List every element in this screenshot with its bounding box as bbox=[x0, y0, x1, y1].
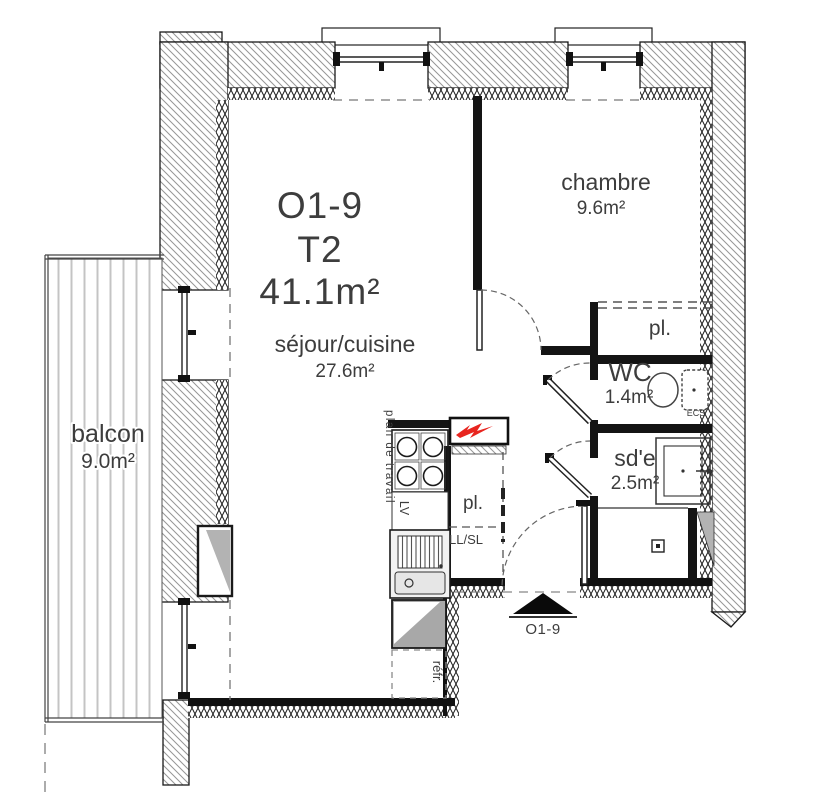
sink-icon bbox=[390, 530, 450, 598]
hall-closet-label: pl. bbox=[649, 317, 671, 340]
chambre-name-label: chambre bbox=[561, 169, 650, 195]
balcony bbox=[45, 255, 164, 798]
floor-drain-icon bbox=[652, 540, 664, 552]
toilet-icon bbox=[648, 370, 708, 410]
sejour-area-label: 27.6m² bbox=[315, 361, 374, 382]
unit-type-label: T2 bbox=[297, 229, 342, 270]
hall-closet-front bbox=[598, 302, 712, 308]
fridge-label: réfr. bbox=[430, 661, 445, 683]
washer-label: LL/SL bbox=[449, 532, 483, 547]
window-handle-icon bbox=[188, 644, 196, 649]
balcon-name-label: balcon bbox=[71, 420, 145, 448]
entry-id-label: O1-9 bbox=[525, 621, 560, 638]
shaft-icon bbox=[392, 600, 446, 648]
unit-area-label: 41.1m² bbox=[259, 271, 380, 312]
electrical-panel-icon bbox=[450, 418, 508, 454]
sde-door bbox=[545, 441, 590, 496]
sejour-name-label: séjour/cuisine bbox=[275, 331, 416, 357]
wc-name-label: WC bbox=[608, 357, 651, 387]
window-handle-icon bbox=[379, 62, 384, 71]
balcon-area-label: 9.0m² bbox=[81, 450, 135, 473]
sde-area-label: 2.5m² bbox=[611, 473, 660, 494]
window-handle-icon bbox=[188, 330, 196, 335]
wc-door bbox=[543, 363, 590, 422]
chambre-door bbox=[477, 290, 541, 350]
chambre-area-label: 9.6m² bbox=[577, 198, 626, 219]
stove-icon bbox=[392, 430, 448, 492]
window-handle-icon bbox=[601, 62, 606, 71]
sde-name-label: sd'e bbox=[614, 445, 655, 471]
kitchen-closet-label: pl. bbox=[463, 493, 483, 514]
entry-arrow-icon bbox=[513, 593, 573, 614]
floor-plan-page: O1-9 O1-9 T2 41.1m² séjour/cuisine 27.6m… bbox=[0, 0, 820, 800]
unit-id-label: O1-9 bbox=[277, 185, 363, 226]
floor-plan-svg: O1-9 O1-9 T2 41.1m² séjour/cuisine 27.6m… bbox=[0, 0, 820, 800]
ecs-label: ECS bbox=[687, 408, 706, 418]
worktop-label: plan de travail bbox=[383, 410, 395, 504]
entry-marker: O1-9 bbox=[509, 593, 577, 638]
wc-area-label: 1.4m² bbox=[605, 387, 654, 408]
radiator-niche bbox=[198, 526, 232, 596]
dishwasher-label: LV bbox=[397, 501, 411, 516]
